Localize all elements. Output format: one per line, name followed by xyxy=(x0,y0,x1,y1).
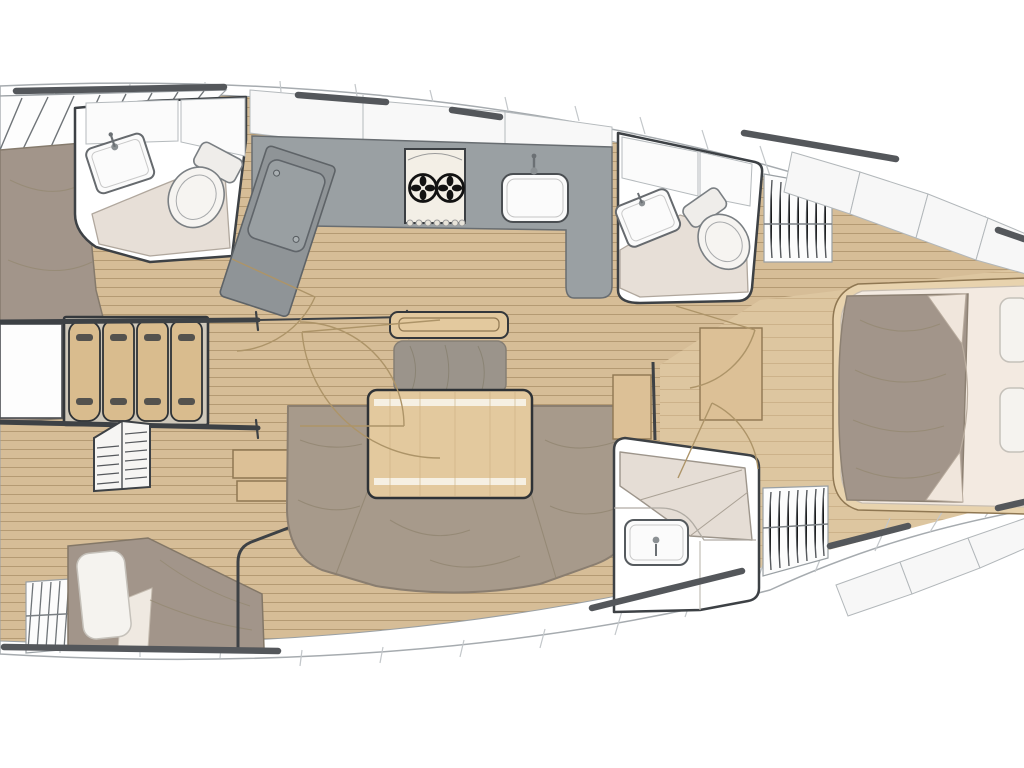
owner-pillow-top xyxy=(1000,298,1024,362)
salon-wall-stub xyxy=(653,362,655,440)
stair-tread xyxy=(69,321,100,421)
owner-cabin-cabinet xyxy=(700,328,762,420)
settee-bench xyxy=(390,312,508,393)
yacht-floor-plan xyxy=(0,0,1024,768)
owner-pillow-bottom xyxy=(1000,388,1024,452)
aft-head-sink xyxy=(625,520,688,565)
pillow xyxy=(76,550,133,641)
side-cabinet-lower xyxy=(237,481,287,501)
port-head xyxy=(75,97,246,262)
salon-table xyxy=(368,390,532,498)
stair-tread xyxy=(171,321,202,421)
forward-starboard-head xyxy=(612,133,762,303)
floor-plan-canvas xyxy=(0,0,1024,768)
salon-wood-strip xyxy=(613,375,651,439)
burner-left xyxy=(410,175,437,202)
stove-2-burner xyxy=(405,149,465,226)
stair-tread xyxy=(137,321,168,421)
burner-right xyxy=(437,175,464,202)
owner-bed xyxy=(833,278,1024,514)
side-cabinet-upper xyxy=(233,450,289,478)
engine-box xyxy=(0,324,62,418)
stair-tread xyxy=(103,321,134,421)
